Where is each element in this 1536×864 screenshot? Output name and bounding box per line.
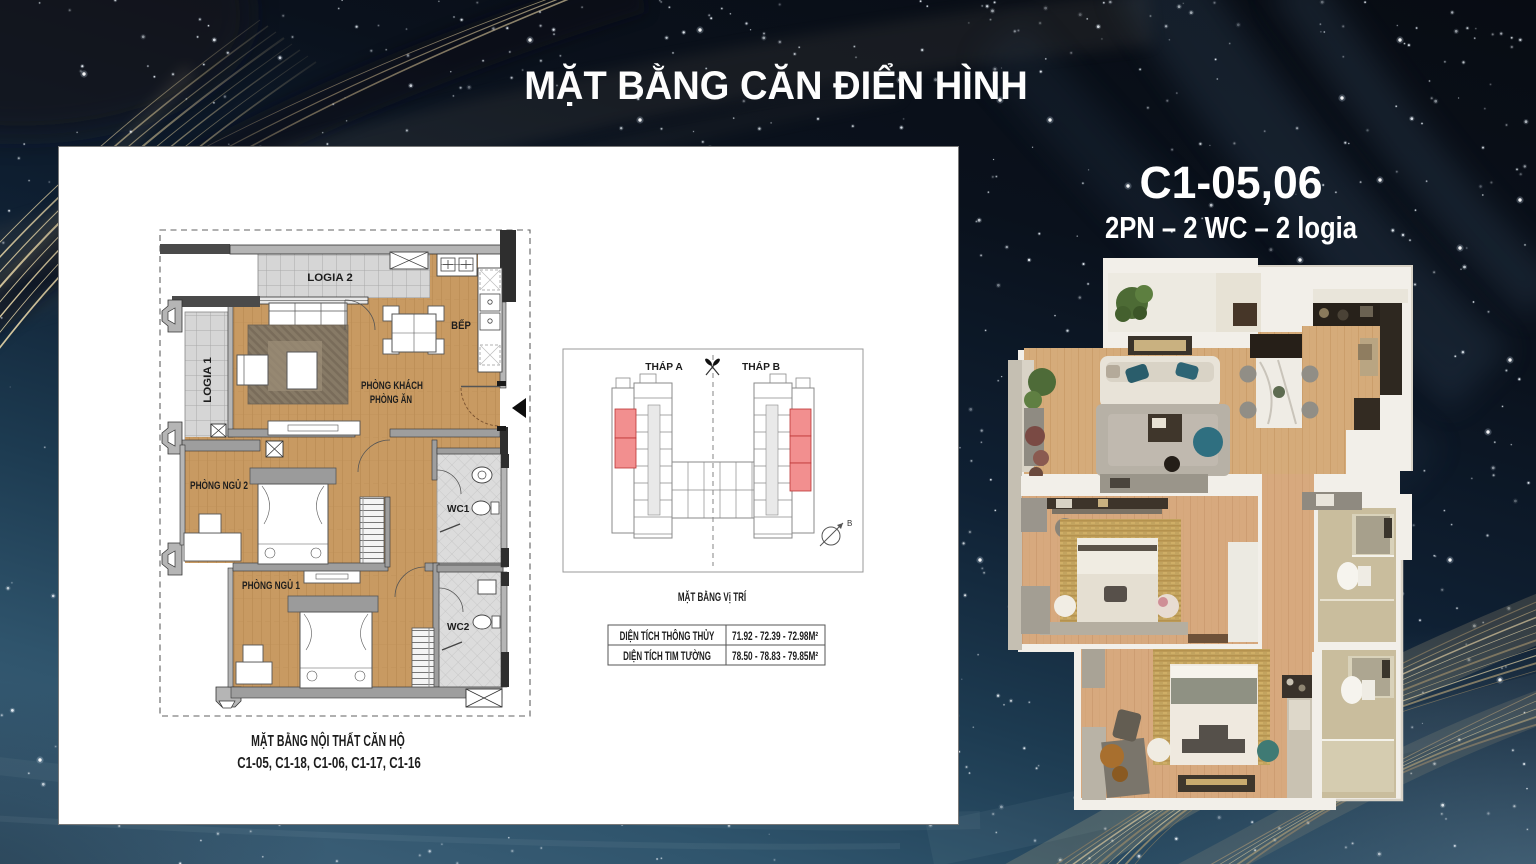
svg-text:MẶT BẰNG CĂN ĐIỂN HÌNH: MẶT BẰNG CĂN ĐIỂN HÌNH xyxy=(524,62,1028,108)
svg-text:DIỆN TÍCH THÔNG THỦY: DIỆN TÍCH THÔNG THỦY xyxy=(620,628,715,643)
svg-text:WC2: WC2 xyxy=(447,622,470,633)
svg-text:LOGIA 2: LOGIA 2 xyxy=(307,272,353,284)
svg-text:PHÒNG NGỦ 1: PHÒNG NGỦ 1 xyxy=(242,579,300,593)
svg-text:MẶT BẰNG Vị TRÍ: MẶT BẰNG Vị TRÍ xyxy=(678,589,747,604)
svg-text:THÁP A: THÁP A xyxy=(645,360,683,373)
svg-text:71.92 - 72.39 - 72.98M²: 71.92 - 72.39 - 72.98M² xyxy=(732,631,819,644)
svg-text:PHÒNG KHÁCH: PHÒNG KHÁCH xyxy=(361,379,423,393)
svg-text:LOGIA 1: LOGIA 1 xyxy=(202,357,214,403)
svg-text:WC1: WC1 xyxy=(447,504,470,515)
svg-text:B: B xyxy=(847,519,852,528)
svg-text:78.50 - 78.83 - 79.85M²: 78.50 - 78.83 - 79.85M² xyxy=(732,651,819,664)
svg-text:C1-05, C1-18, C1-06, C1-17, C1: C1-05, C1-18, C1-06, C1-17, C1-16 xyxy=(237,753,421,771)
svg-text:THÁP B: THÁP B xyxy=(742,360,780,373)
svg-text:MẶT BẰNG NỘI THẤT CĂN HỘ: MẶT BẰNG NỘI THẤT CĂN HỘ xyxy=(251,732,405,750)
svg-text:BẾP: BẾP xyxy=(451,318,471,332)
svg-text:2PN – 2 WC – 2 logia: 2PN – 2 WC – 2 logia xyxy=(1105,211,1357,246)
svg-text:C1-05,06: C1-05,06 xyxy=(1139,158,1322,208)
svg-text:PHÒNG NGỦ 2: PHÒNG NGỦ 2 xyxy=(190,479,248,493)
svg-text:DIỆN TÍCH TIM TƯỜNG: DIỆN TÍCH TIM TƯỜNG xyxy=(623,648,711,663)
svg-text:PHÒNG ĂN: PHÒNG ĂN xyxy=(370,393,412,407)
